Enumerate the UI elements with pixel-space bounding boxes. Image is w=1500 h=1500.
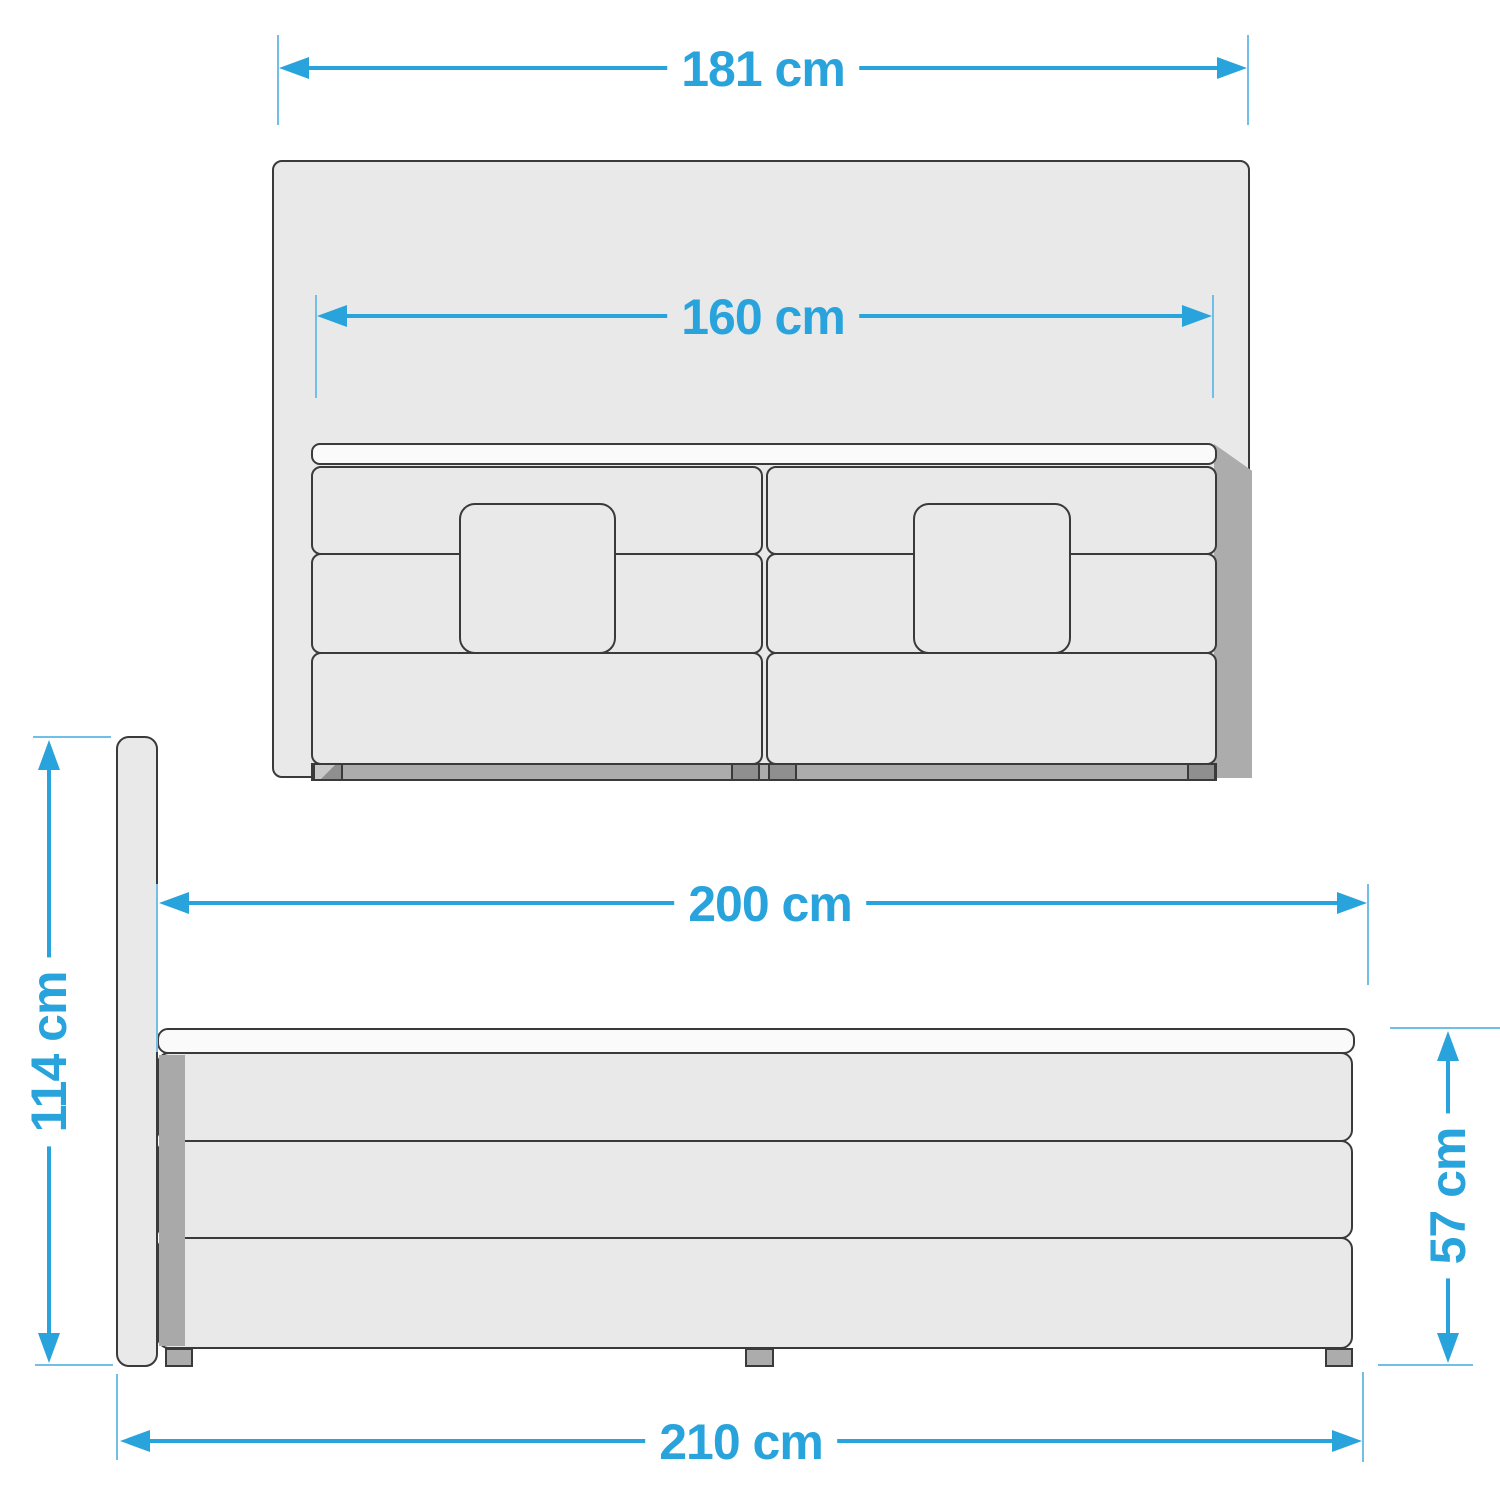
front-cushion-left — [459, 503, 616, 654]
dimension-label-base-height: 57 cm — [1419, 1114, 1477, 1279]
tick-top — [33, 736, 111, 738]
side-row-middle — [157, 1140, 1353, 1239]
front-foot-left — [313, 763, 343, 781]
dimension-label-total-length: 210 cm — [645, 1413, 837, 1471]
front-right-row-bottom — [766, 652, 1217, 765]
tick-bottom — [35, 1364, 113, 1366]
front-mattress-topper — [311, 443, 1217, 465]
front-foot-center-right — [768, 763, 797, 781]
tick-right — [1367, 884, 1369, 985]
front-foot-center-left — [731, 763, 760, 781]
side-foot-right — [1325, 1348, 1353, 1367]
side-foot-middle — [745, 1348, 774, 1367]
side-headboard-shadow-strip — [159, 1055, 185, 1346]
tick-right — [1247, 35, 1249, 125]
bed-dimension-diagram: 181 cm 160 cm 200 cm 114 cm 57 cm — [0, 0, 1500, 1500]
side-headboard — [116, 736, 158, 1367]
arrowhead-down-icon — [38, 1333, 60, 1363]
arrowhead-up-icon — [38, 740, 60, 770]
tick-right — [1212, 295, 1214, 398]
arrowhead-down-icon — [1437, 1333, 1459, 1363]
tick-left — [277, 35, 279, 125]
arrowhead-left-icon — [317, 305, 347, 327]
dimension-label-total-height: 114 cm — [20, 958, 78, 1147]
arrowhead-left-icon — [159, 892, 189, 914]
front-foot-right — [1187, 763, 1216, 781]
front-cushion-right — [913, 503, 1071, 654]
arrowhead-right-icon — [1337, 892, 1367, 914]
arrowhead-left-icon — [120, 1430, 150, 1452]
arrowhead-up-icon — [1437, 1031, 1459, 1061]
front-base-bar — [311, 763, 1217, 781]
arrowhead-right-icon — [1217, 57, 1247, 79]
dimension-label-headboard-width: 181 cm — [667, 40, 859, 98]
arrowhead-right-icon — [1332, 1430, 1362, 1452]
arrowhead-right-icon — [1182, 305, 1212, 327]
tick-left — [116, 1374, 118, 1460]
side-row-top — [157, 1052, 1353, 1142]
side-foot-left — [165, 1348, 193, 1367]
tick-bottom — [1378, 1364, 1473, 1366]
side-mattress-topper — [157, 1028, 1355, 1054]
front-bed-shadow — [1214, 444, 1252, 778]
dimension-label-bed-length: 200 cm — [674, 875, 866, 933]
front-left-row-bottom — [311, 652, 763, 765]
tick-right — [1362, 1372, 1364, 1462]
side-row-bottom — [157, 1237, 1353, 1349]
tick-top — [1390, 1027, 1500, 1029]
dimension-label-mattress-width: 160 cm — [667, 288, 859, 346]
arrowhead-left-icon — [279, 57, 309, 79]
tick-left — [156, 884, 158, 1052]
